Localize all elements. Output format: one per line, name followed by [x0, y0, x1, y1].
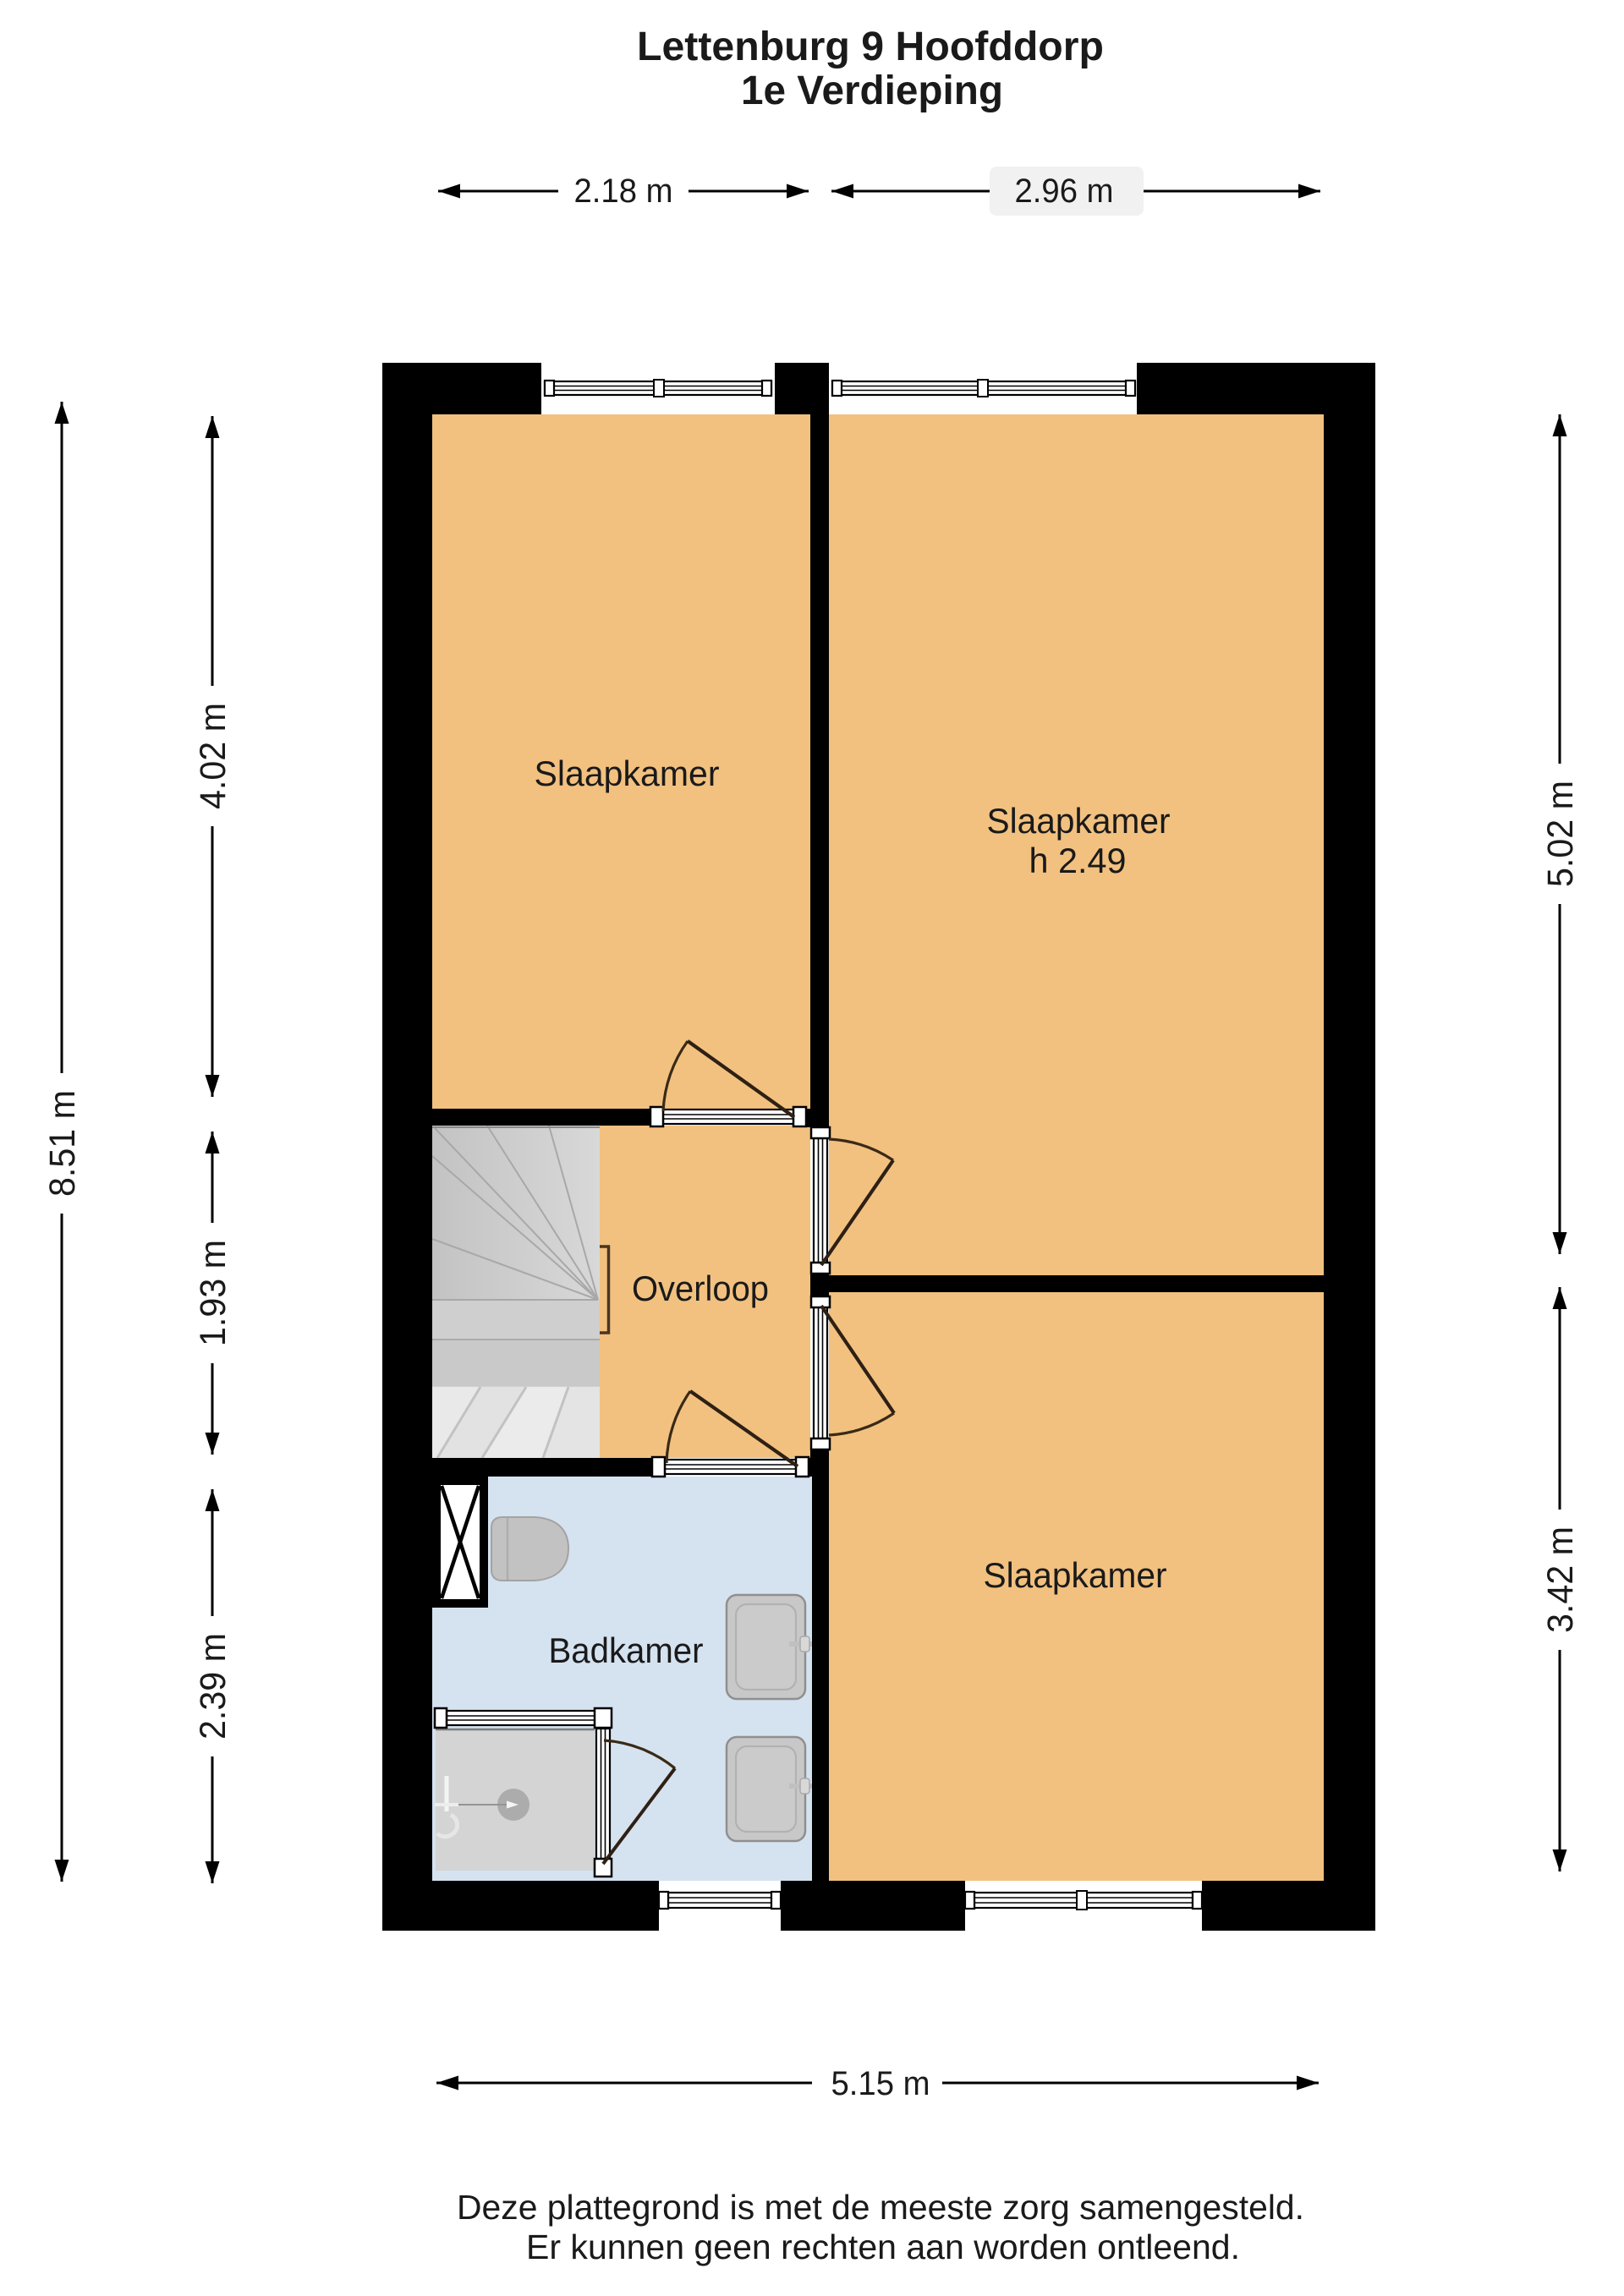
svg-text:Slaapkamer: Slaapkamer [987, 801, 1171, 841]
svg-text:h 2.49: h 2.49 [1029, 841, 1127, 880]
svg-text:Deze plattegrond is met de mee: Deze plattegrond is met de meeste zorg s… [457, 2188, 1304, 2227]
svg-text:Lettenburg 9 Hoofddorp: Lettenburg 9 Hoofddorp [637, 25, 1104, 69]
svg-text:5.02 m: 5.02 m [1540, 781, 1581, 887]
svg-text:2.18 m: 2.18 m [574, 173, 673, 210]
svg-text:Slaapkamer: Slaapkamer [535, 753, 720, 793]
svg-text:Slaapkamer: Slaapkamer [984, 1555, 1167, 1595]
svg-text:2.96 m: 2.96 m [1015, 173, 1114, 210]
svg-text:3.42 m: 3.42 m [1540, 1526, 1581, 1633]
svg-text:5.15 m: 5.15 m [831, 2065, 930, 2102]
svg-text:Er kunnen geen rechten aan wor: Er kunnen geen rechten aan worden ontlee… [526, 2228, 1240, 2266]
svg-text:1.93 m: 1.93 m [193, 1240, 233, 1346]
svg-text:4.02 m: 4.02 m [193, 703, 233, 809]
svg-text:Badkamer: Badkamer [549, 1630, 704, 1670]
svg-text:8.51 m: 8.51 m [42, 1090, 83, 1197]
svg-text:2.39 m: 2.39 m [193, 1633, 233, 1740]
svg-text:1e Verdieping: 1e Verdieping [741, 68, 1003, 113]
svg-text:Overloop: Overloop [632, 1269, 769, 1308]
